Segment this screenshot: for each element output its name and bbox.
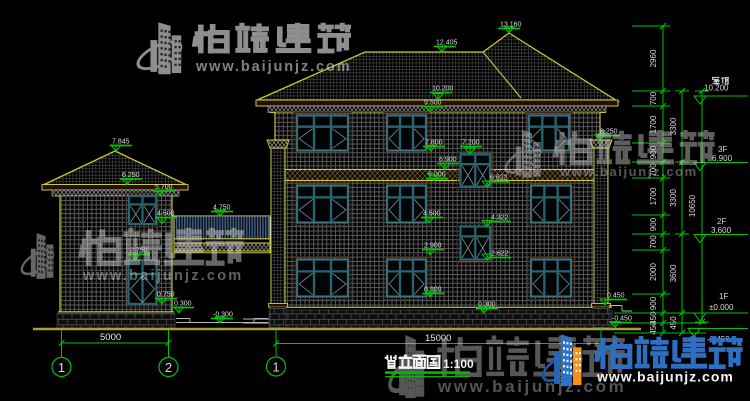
svg-text:3600: 3600 [669,264,678,282]
svg-text:3F: 3F [718,145,727,154]
svg-text:10650: 10650 [688,194,697,217]
svg-text:7.845: 7.845 [112,139,130,146]
svg-text:www.baijunjz.com: www.baijunjz.com [195,59,352,75]
svg-text:0.750: 0.750 [157,292,175,299]
svg-text:4.500: 4.500 [157,211,175,218]
svg-text:5000: 5000 [100,332,121,343]
svg-text:900: 900 [649,217,658,231]
svg-text:12.405: 12.405 [436,40,458,47]
svg-text:1700: 1700 [649,187,658,205]
svg-text:6.900: 6.900 [712,154,733,163]
svg-text:www.baijunjz.com: www.baijunjz.com [559,164,698,179]
svg-text:4.322: 4.322 [491,215,509,222]
svg-text:900: 900 [649,296,658,310]
svg-text:1F: 1F [719,292,728,301]
svg-text:0.300: 0.300 [174,301,192,308]
svg-text:700: 700 [649,235,658,249]
svg-text:4.500: 4.500 [423,211,441,218]
svg-text:www.baijunjz.com: www.baijunjz.com [596,369,734,385]
svg-text:www.baijunjz.com: www.baijunjz.com [82,268,243,284]
svg-text:±0.000: ±0.000 [709,303,734,312]
svg-text:7.200: 7.200 [462,140,480,147]
svg-text:1: 1 [58,360,65,375]
svg-text:2000: 2000 [649,263,658,281]
svg-text:2960: 2960 [649,49,658,67]
svg-text:6.622: 6.622 [490,175,508,182]
svg-text:10.200: 10.200 [704,84,729,93]
svg-text:9.500: 9.500 [424,100,442,107]
svg-text:2.900: 2.900 [424,243,442,250]
svg-text:15000: 15000 [425,333,451,344]
svg-text:1: 1 [272,360,279,375]
svg-text:6.250: 6.250 [122,172,140,179]
svg-text:6.900: 6.900 [439,157,457,164]
svg-text:700: 700 [649,91,658,105]
svg-text:2.622: 2.622 [491,251,509,258]
svg-text:1:100: 1:100 [443,357,474,371]
svg-text:2F: 2F [717,217,726,226]
svg-text:10.200: 10.200 [432,86,454,93]
svg-text:1700: 1700 [649,115,658,133]
svg-text:0.450: 0.450 [607,293,625,300]
svg-text:3.600: 3.600 [711,226,732,235]
svg-text:2: 2 [165,360,172,375]
svg-text:3300: 3300 [669,189,678,207]
